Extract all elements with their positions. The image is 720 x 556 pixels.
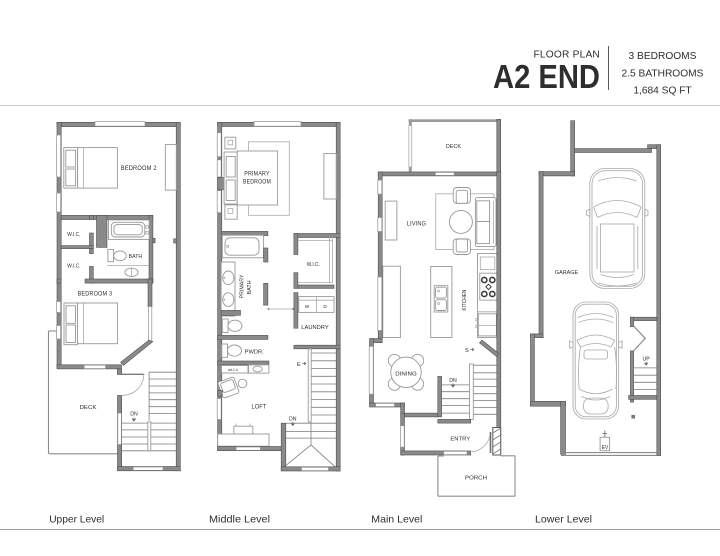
svg-text:DECK: DECK	[80, 405, 98, 411]
svg-text:BEDROOM 3: BEDROOM 3	[78, 291, 113, 298]
svg-text:DECK: DECK	[446, 144, 462, 150]
svg-text:DN: DN	[289, 417, 297, 423]
svg-text:EV: EV	[602, 445, 609, 451]
svg-text:BATH: BATH	[129, 254, 143, 260]
svg-text:LAUNDRY: LAUNDRY	[301, 325, 329, 331]
svg-text:W.I.C.: W.I.C.	[67, 232, 80, 238]
svg-text:PORCH: PORCH	[465, 476, 487, 482]
svg-text:BEDROOM: BEDROOM	[243, 178, 271, 185]
svg-text:DN: DN	[449, 378, 457, 384]
svg-text:2.5 BATHROOMS: 2.5 BATHROOMS	[622, 69, 704, 80]
svg-text:W.I.C.: W.I.C.	[307, 262, 320, 268]
svg-text:LIVING: LIVING	[407, 221, 426, 228]
svg-text:LOFT: LOFT	[252, 403, 267, 410]
svg-text:BEDROOM 2: BEDROOM 2	[121, 165, 157, 172]
svg-text:ENTRY: ENTRY	[450, 436, 470, 442]
svg-text:Upper Level: Upper Level	[49, 514, 104, 526]
svg-text:Lower Level: Lower Level	[535, 514, 592, 526]
svg-text:Main Level: Main Level	[371, 514, 422, 526]
svg-text:DN: DN	[130, 412, 138, 418]
svg-text:ad.1-h: ad.1-h	[228, 368, 238, 372]
svg-text:A2 END: A2 END	[493, 58, 600, 95]
svg-text:KITCHEN: KITCHEN	[462, 289, 468, 310]
svg-text:S: S	[465, 348, 469, 354]
svg-text:W.I.C.: W.I.C.	[67, 264, 80, 270]
svg-text:PRIMARY: PRIMARY	[240, 274, 246, 299]
svg-text:GARAGE: GARAGE	[555, 270, 579, 276]
svg-text:PRIMARY: PRIMARY	[244, 170, 270, 177]
svg-text:DINING: DINING	[395, 371, 416, 377]
svg-text:BATH: BATH	[247, 280, 253, 294]
svg-text:E: E	[297, 362, 301, 368]
svg-text:Middle Level: Middle Level	[209, 514, 270, 526]
svg-text:1,684 SQ FT: 1,684 SQ FT	[633, 86, 691, 97]
svg-text:PWDR.: PWDR.	[245, 350, 264, 356]
svg-text:3 BEDROOMS: 3 BEDROOMS	[629, 51, 697, 62]
svg-text:W: W	[305, 304, 310, 309]
